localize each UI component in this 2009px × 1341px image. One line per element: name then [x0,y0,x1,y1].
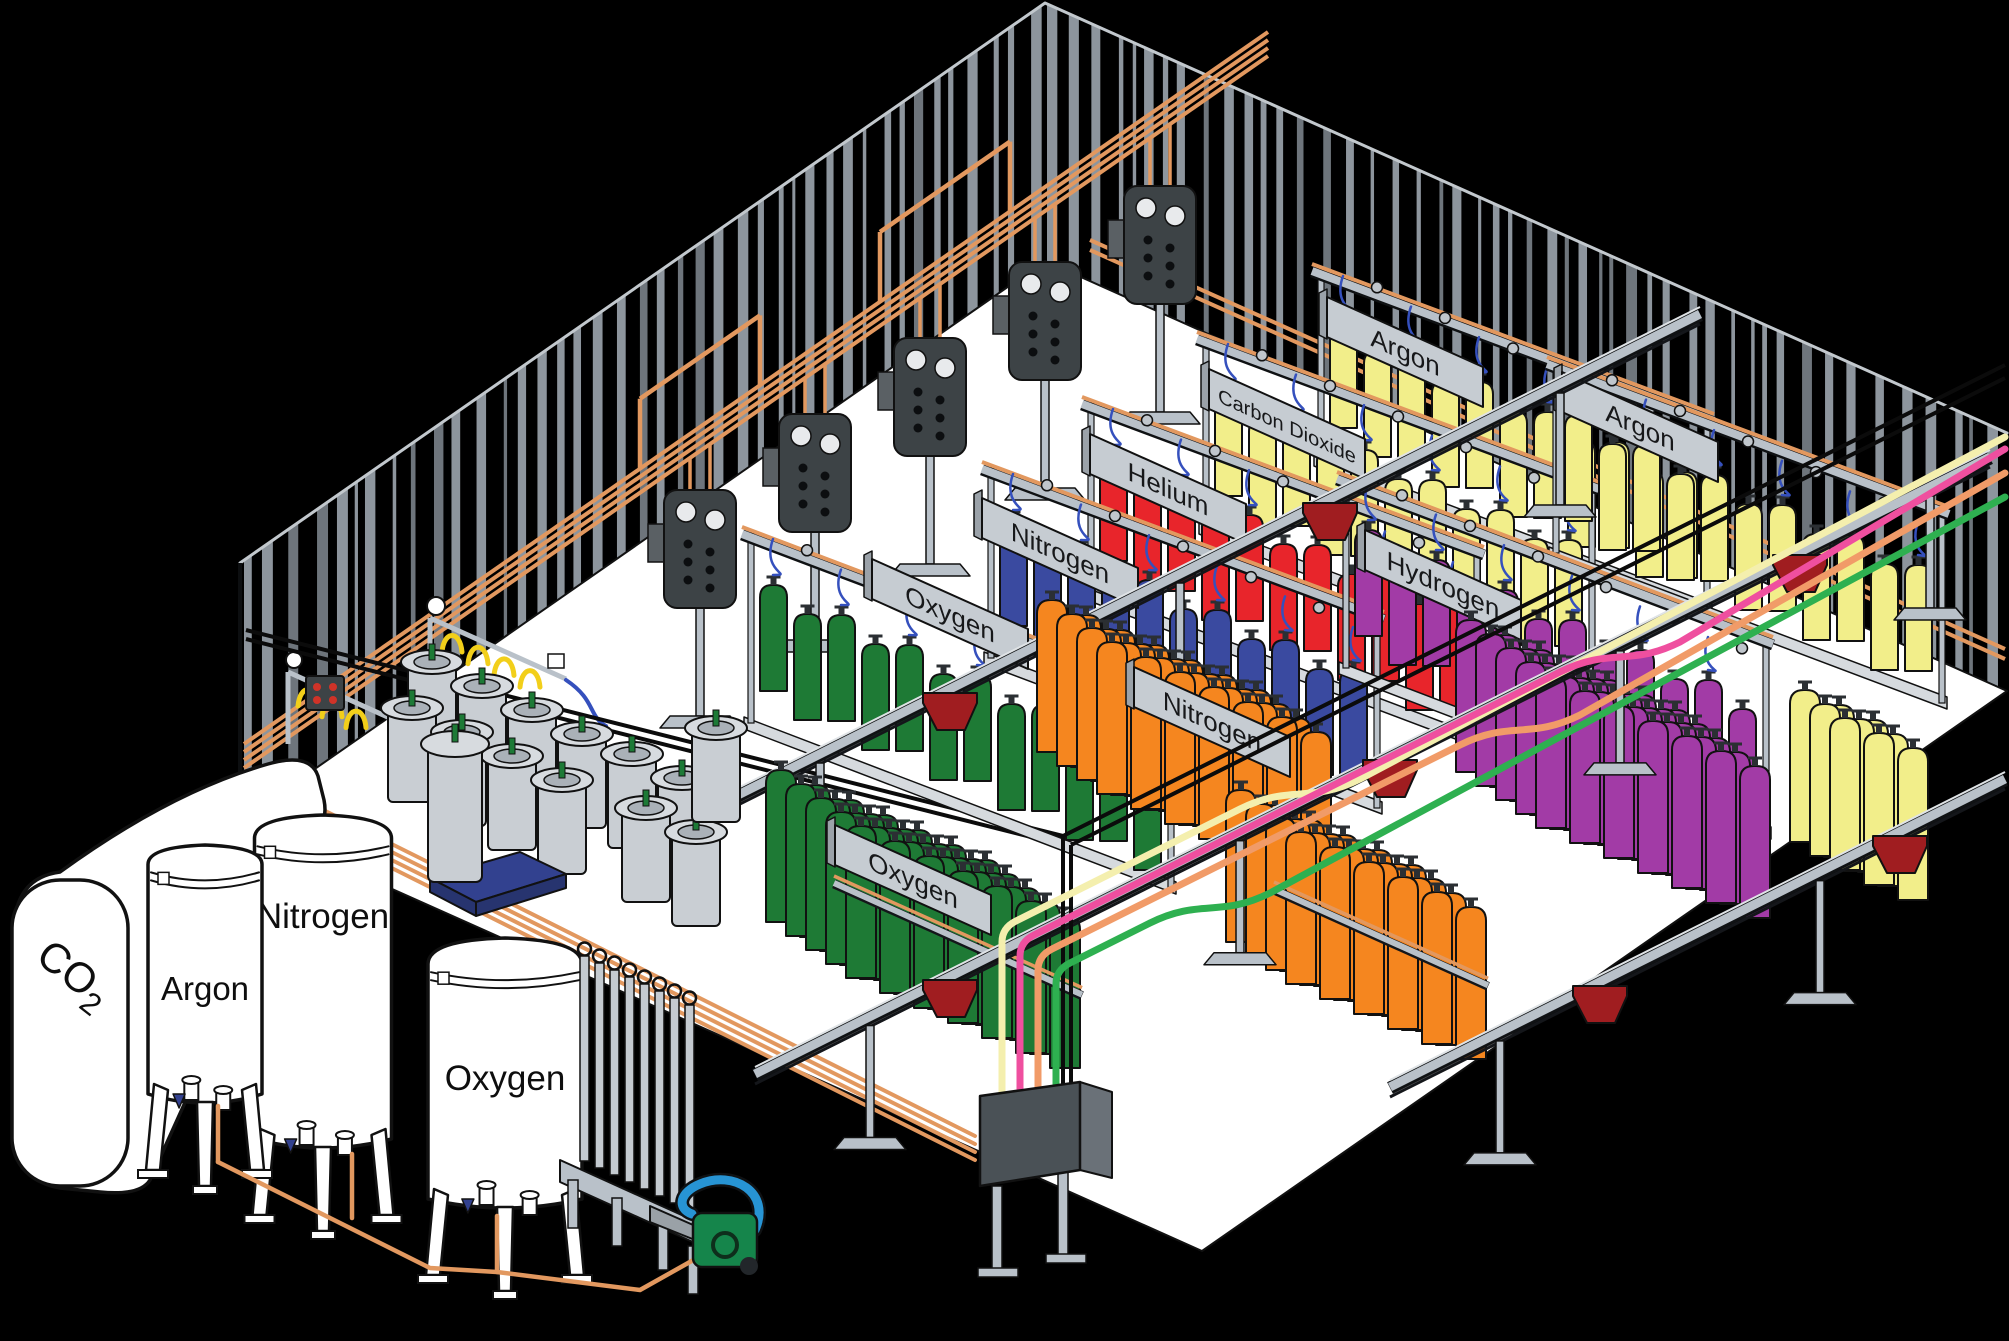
bulk-tank-oxygen: Oxygen [418,938,592,1299]
tank-label-nitrogen: Nitrogen [257,897,389,936]
facility-isometric-diagram: ArgonCarbon DioxideArgonHeliumNitrogenHy… [0,0,2009,1341]
bulk-tank-argon: Argon [138,845,272,1194]
gas-filling-plant-illustration: ArgonCarbon DioxideArgonHeliumNitrogenHy… [0,0,2009,1341]
tank-label-argon: Argon [161,970,249,1007]
tank-label-oxygen: Oxygen [445,1059,566,1098]
